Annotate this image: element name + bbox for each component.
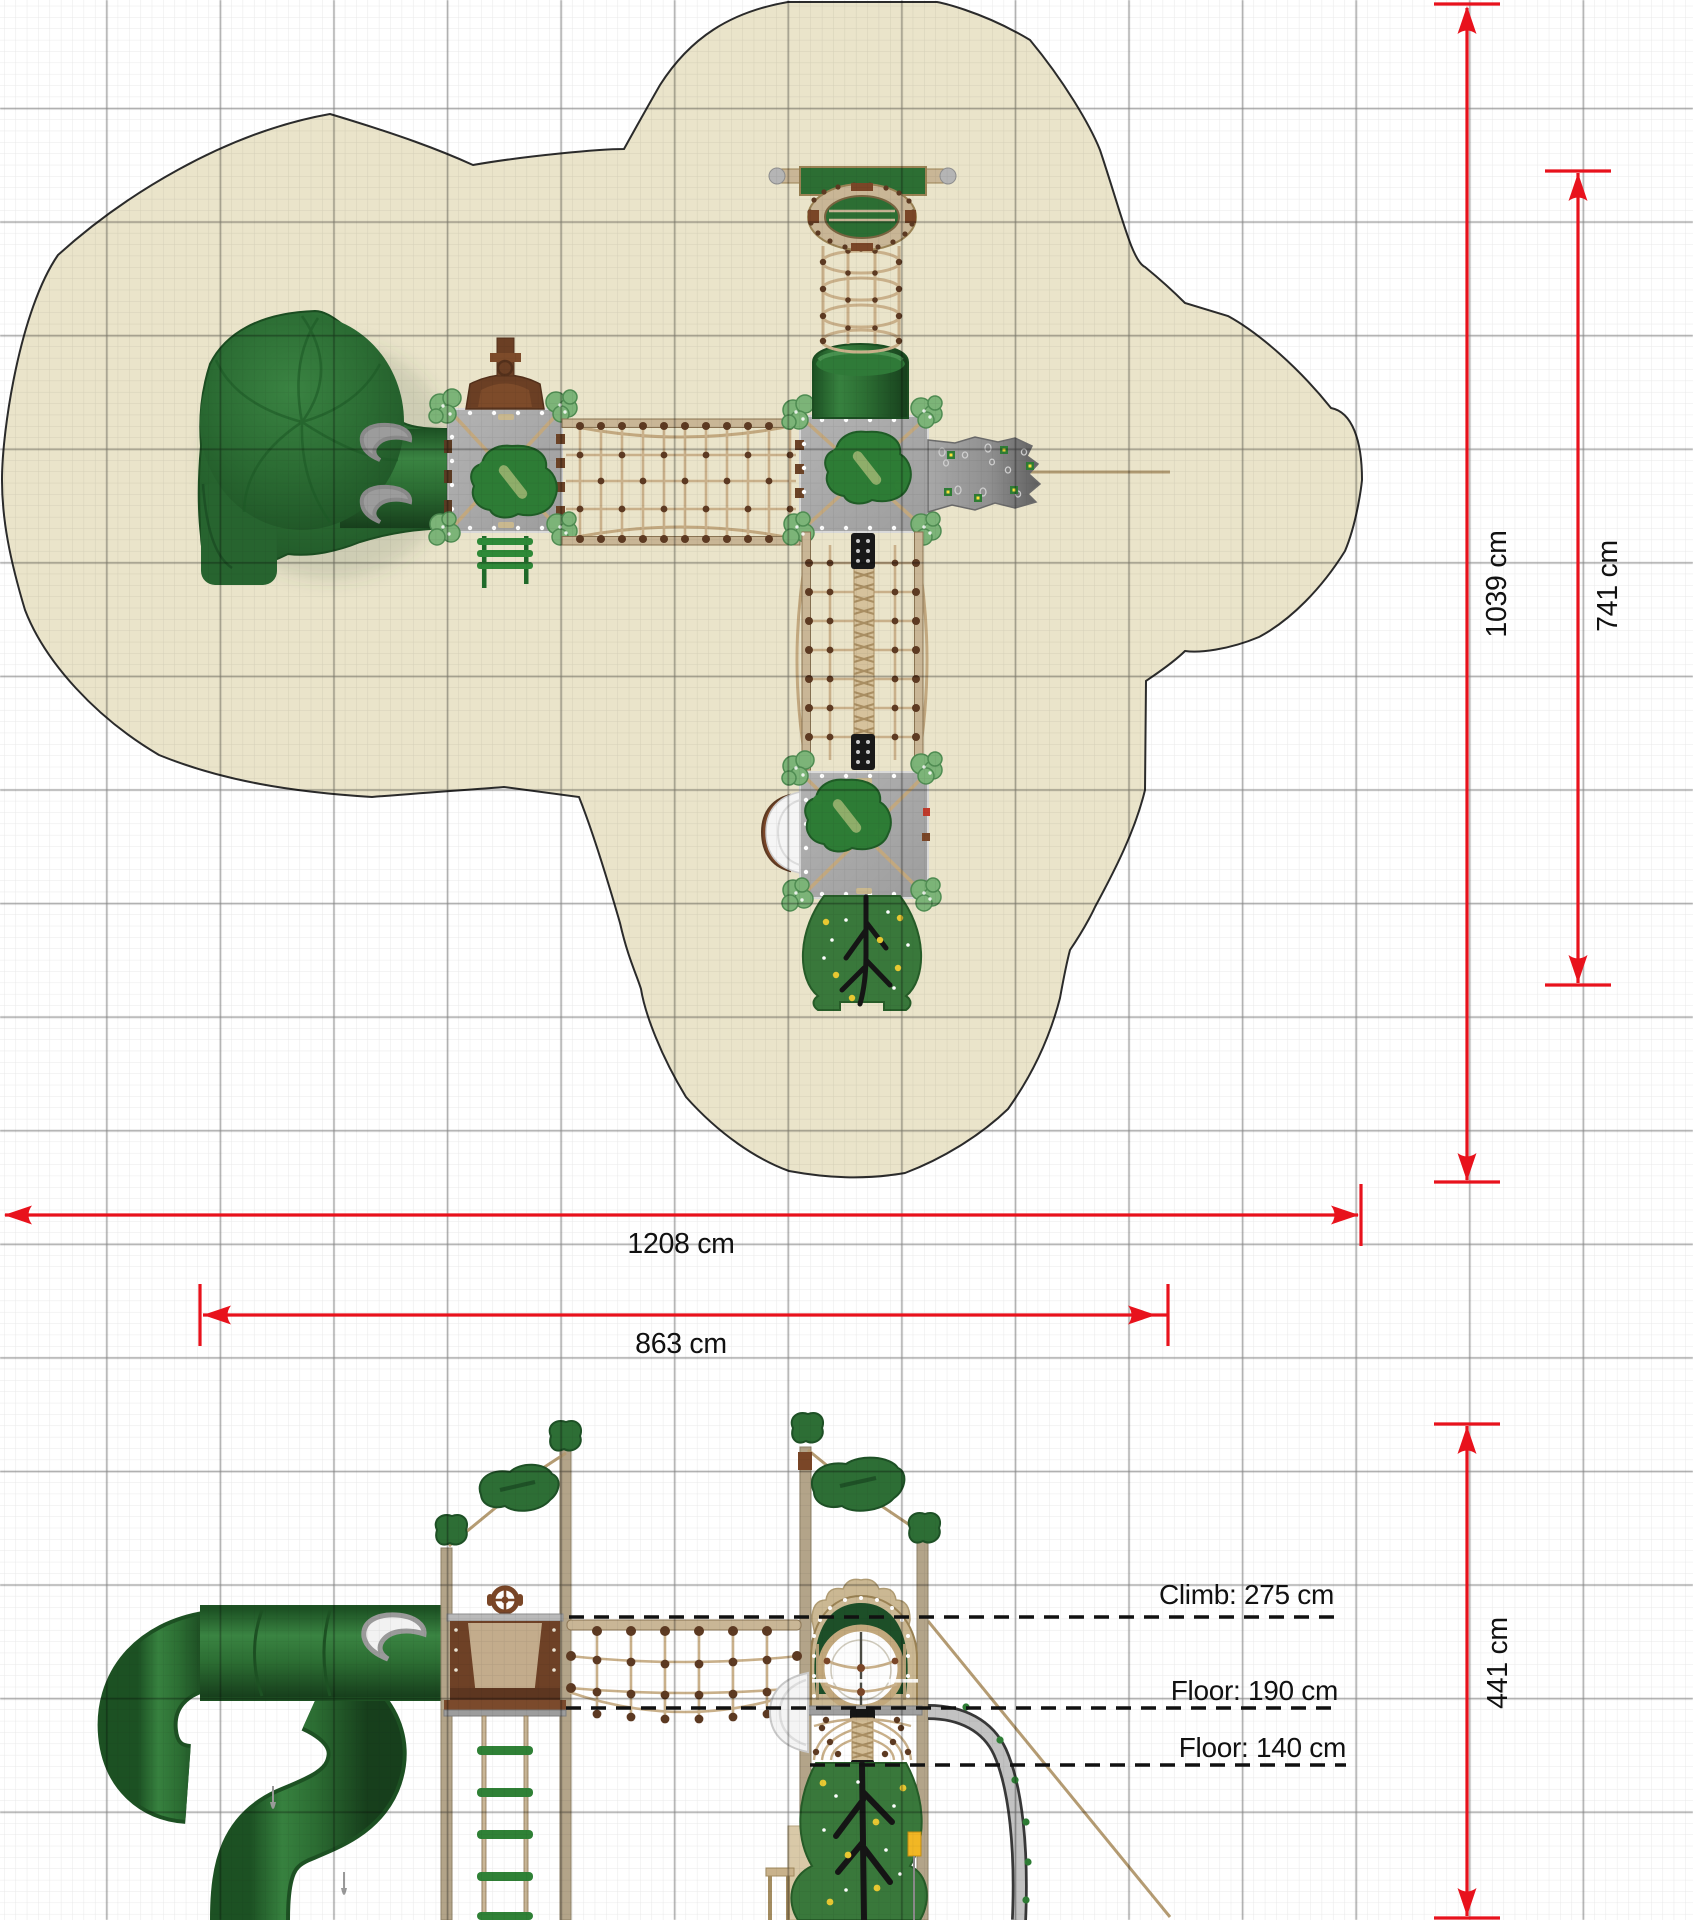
svg-text:863 cm: 863 cm [635,1328,727,1360]
svg-text:1208 cm: 1208 cm [627,1228,734,1260]
svg-text:Floor: 140 cm: Floor: 140 cm [1179,1732,1346,1763]
svg-text:741 cm: 741 cm [1592,540,1624,632]
svg-text:441 cm: 441 cm [1482,1617,1514,1709]
svg-text:Floor: 190 cm: Floor: 190 cm [1171,1675,1338,1706]
svg-text:Climb: 275 cm: Climb: 275 cm [1159,1579,1334,1610]
svg-text:1039 cm: 1039 cm [1481,530,1513,637]
